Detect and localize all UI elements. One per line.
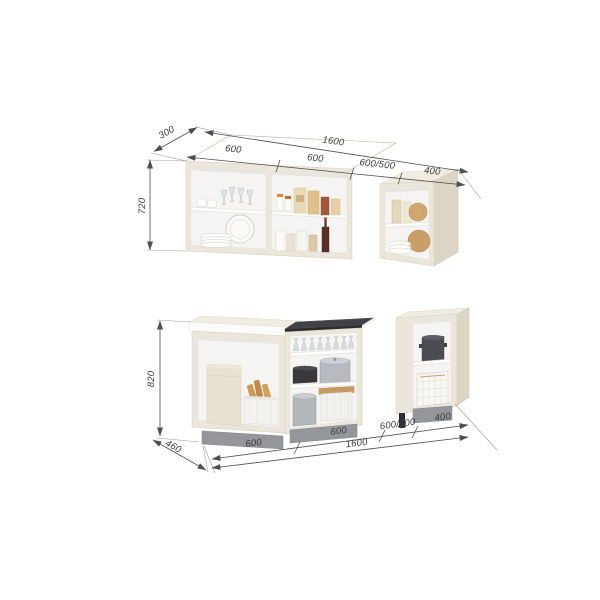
base400-side bbox=[457, 308, 469, 406]
food-box-label bbox=[296, 195, 304, 202]
dim-upper-cab1: 600 bbox=[225, 143, 243, 156]
base-cabinet-400 bbox=[396, 308, 469, 428]
diagram-canvas: 300 720 1600 600 600 600/500 400 820 460… bbox=[0, 0, 600, 600]
dim-upper-hood-gap: 600/500 bbox=[359, 157, 396, 172]
food-box bbox=[308, 191, 319, 214]
dim-lower-cab2: 600 bbox=[330, 425, 348, 438]
spice-jar-cap bbox=[277, 194, 283, 197]
wall-cabinet-run bbox=[186, 135, 396, 259]
wire-basket bbox=[417, 372, 448, 407]
dim-upper-height: 720 bbox=[137, 197, 148, 214]
plate-stack bbox=[200, 233, 232, 247]
food-jar bbox=[321, 197, 329, 215]
dim-lower-depth: 460 bbox=[163, 438, 183, 456]
base-left-plinth bbox=[202, 431, 283, 449]
canister bbox=[309, 235, 317, 251]
dim-lower-hood-gap: 600/500 bbox=[379, 417, 416, 433]
kitchen-diagram-svg: 300 720 1600 600 600 600/500 400 820 460… bbox=[0, 0, 600, 600]
dim-lower-height: 820 bbox=[146, 370, 157, 387]
cutting-board bbox=[408, 230, 430, 252]
waste-bin bbox=[207, 364, 241, 426]
dim-upper-depth: 300 bbox=[157, 124, 177, 142]
bowl-stack bbox=[389, 241, 411, 254]
dark-pot bbox=[419, 335, 447, 362]
steel-pot-knob bbox=[334, 358, 337, 361]
food-box bbox=[331, 199, 340, 215]
spice-jar-cap bbox=[285, 196, 291, 199]
dim-lower-total: 1600 bbox=[345, 437, 369, 451]
steel-stockpot-lid bbox=[293, 393, 316, 399]
wall-cabinet-400 bbox=[380, 169, 458, 266]
round-platter bbox=[409, 203, 427, 221]
black-pot-lid bbox=[293, 366, 317, 371]
dim-upper-cab3: 400 bbox=[424, 165, 442, 178]
base-cabinet-hob bbox=[283, 318, 376, 443]
cup bbox=[208, 200, 217, 208]
dim-upper-cab2: 600 bbox=[307, 152, 325, 165]
base-cabinet-sink bbox=[189, 316, 301, 449]
dim-lower-cab1: 600 bbox=[245, 437, 263, 450]
dim-upper-total: 1600 bbox=[322, 134, 346, 148]
canister bbox=[287, 234, 295, 251]
steel-stockpot bbox=[293, 396, 316, 427]
white-storage-box bbox=[321, 392, 352, 421]
cup bbox=[197, 199, 206, 207]
canister bbox=[276, 231, 285, 251]
food-box bbox=[392, 200, 401, 223]
dim-lower-cab3: 400 bbox=[434, 411, 452, 424]
canister bbox=[297, 231, 307, 251]
